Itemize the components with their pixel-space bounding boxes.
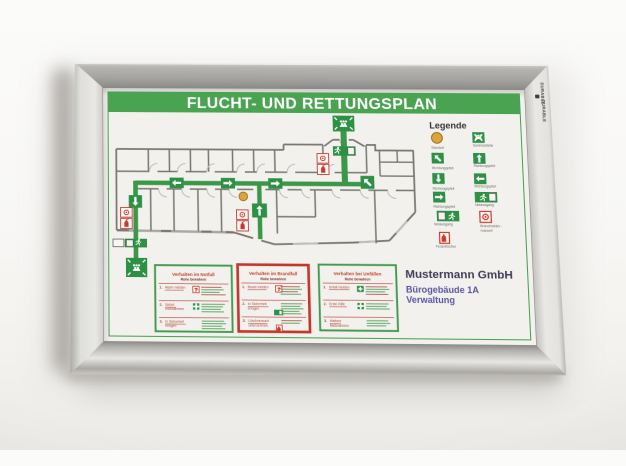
svg-text:Verhalten im Brandfall: Verhalten im Brandfall [249, 271, 297, 277]
svg-text:Notausgang: Notausgang [434, 222, 453, 226]
svg-text:Brand melden: Brand melden [248, 285, 269, 289]
svg-text:Verhalten im Notfall: Verhalten im Notfall [172, 271, 215, 277]
svg-text:3.: 3. [160, 319, 163, 323]
svg-text:DURABLE: DURABLE [541, 100, 547, 122]
svg-text:Brandmelder -: Brandmelder - [480, 224, 502, 228]
svg-text:3.: 3. [243, 319, 246, 323]
svg-text:Verhalten bei Unfällen: Verhalten bei Unfällen [333, 271, 381, 277]
svg-text:Legende: Legende [429, 120, 467, 130]
svg-text:Ruhe bewahren: Ruhe bewahren [181, 278, 207, 282]
svg-text:2.: 2. [324, 302, 327, 306]
svg-text:Richtungspfeil: Richtungspfeil [473, 164, 495, 168]
svg-text:Standort: Standort [431, 146, 444, 150]
svg-text:1.: 1. [242, 285, 245, 289]
svg-text:Unfall melden: Unfall melden [329, 285, 350, 289]
svg-text:1.: 1. [323, 285, 326, 289]
svg-text:Ruhe bewahren: Ruhe bewahren [345, 277, 371, 281]
svg-text:unternehmen: unternehmen [248, 323, 268, 327]
svg-text:Richtungspfeil: Richtungspfeil [474, 184, 496, 188]
svg-text:2.: 2. [242, 302, 245, 306]
svg-text:Ruhe bewahren: Ruhe bewahren [260, 277, 286, 281]
svg-text:Notausgang: Notausgang [475, 203, 494, 207]
svg-text:Verwaltung: Verwaltung [406, 294, 455, 305]
svg-text:Richtungspfeil: Richtungspfeil [433, 205, 455, 209]
svg-text:Alarm melden: Alarm melden [165, 286, 186, 290]
svg-text:manuell: manuell [480, 229, 493, 233]
svg-text:3.: 3. [324, 319, 327, 323]
svg-text:Sammelstelle: Sammelstelle [473, 143, 494, 147]
svg-text:Erste Hilfe: Erste Hilfe [329, 302, 345, 306]
svg-text:Mustermann GmbH: Mustermann GmbH [405, 268, 513, 282]
svg-text:Maßnahmen: Maßnahmen [330, 323, 349, 327]
svg-text:Richtungspfeil: Richtungspfeil [432, 166, 454, 170]
svg-text:maßnahmen: maßnahmen [165, 307, 184, 311]
svg-text:Richtungspfeil: Richtungspfeil [433, 186, 455, 190]
svg-text:1.: 1. [159, 285, 162, 289]
svg-text:2.: 2. [159, 302, 162, 306]
svg-text:bringen: bringen [248, 306, 260, 310]
svg-text:bringen: bringen [165, 324, 176, 328]
svg-text:Feuerlöscher: Feuerlöscher [436, 245, 457, 249]
svg-text:FLUCHT- UND RETTUNGSPLAN: FLUCHT- UND RETTUNGSPLAN [187, 95, 438, 114]
